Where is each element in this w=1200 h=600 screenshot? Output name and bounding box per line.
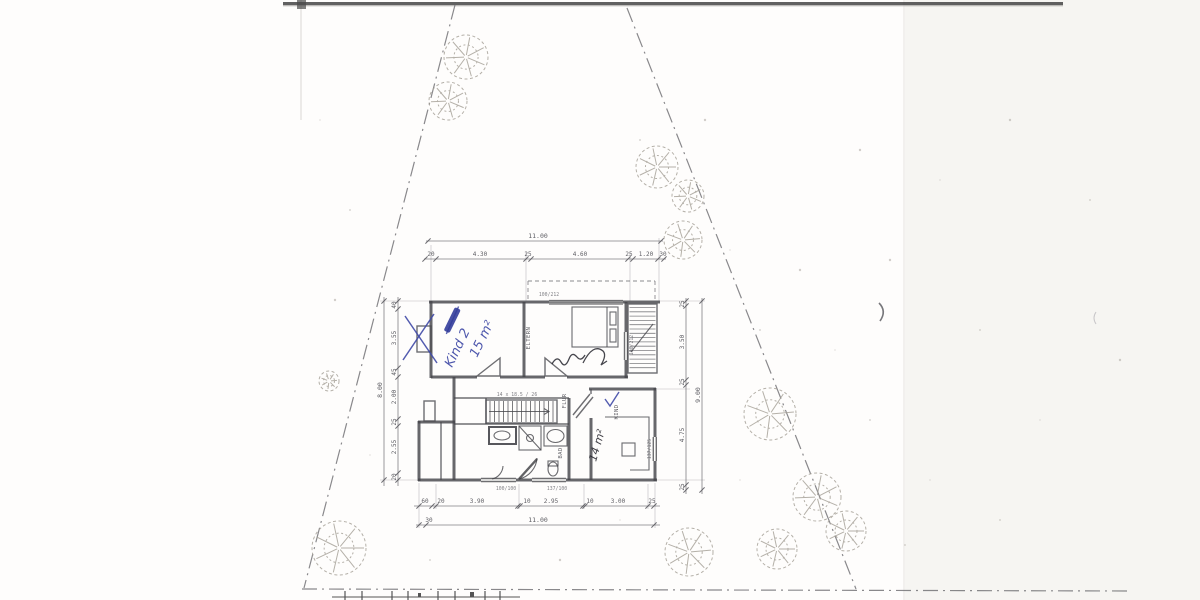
dim-top-4: 25 (625, 251, 633, 258)
dim-bot-4: 2.95 (544, 498, 559, 505)
dim-top-1: 4.30 (473, 251, 488, 258)
dim-bot-offset: 30 (425, 517, 433, 524)
window-label-top: 100/212 (539, 292, 559, 298)
scanned-site-plan-page: { "drawing": { "dimensions_top": { "tota… (0, 0, 1200, 600)
dim-top-3: 4.60 (573, 251, 588, 258)
speckle (929, 479, 930, 480)
dim-top-total: 11.00 (528, 232, 548, 240)
room-label-eltern: ELTERN (526, 327, 532, 350)
window-label-right: 137/125 (647, 439, 653, 459)
dim-right-4: 25 (679, 483, 686, 491)
speckle (1009, 119, 1011, 121)
dim-bottom-total: 11.00 (528, 516, 548, 524)
speckle (639, 139, 641, 141)
speckle (429, 559, 431, 561)
speckle (904, 544, 906, 546)
speckle (729, 249, 730, 250)
speckle (739, 479, 740, 480)
speckle (1089, 199, 1091, 201)
dim-left-1: 3.55 (391, 330, 398, 345)
dim-bot-5: 10 (586, 498, 594, 505)
speckle (1039, 419, 1040, 420)
speckle (834, 349, 835, 350)
speckle (619, 519, 620, 520)
speckle (334, 299, 336, 301)
dim-left-5: 2.55 (391, 439, 398, 454)
speckle (939, 179, 940, 180)
speckle (799, 269, 801, 271)
dim-left-total: 8.00 (376, 382, 384, 398)
dim-top-5: 1.20 (639, 251, 654, 258)
speckle (999, 519, 1001, 521)
dim-right-2: 25 (679, 378, 686, 386)
room-label-flur: FLUR (562, 393, 568, 408)
window-label-balcony: 100/212 (629, 335, 635, 355)
speckle (859, 149, 861, 151)
dim-right-1: 3.50 (679, 334, 686, 349)
dim-top-2: 25 (524, 251, 532, 258)
dim-top-0: 20 (427, 251, 435, 258)
speckle (319, 119, 320, 120)
dim-bot-6: 3.00 (611, 498, 626, 505)
dim-bot-3: 10 (523, 498, 531, 505)
scanner-corner-artifact (297, 0, 306, 9)
scanner-edge-shadow (283, 5, 1063, 6)
dim-right-total: 9.00 (694, 387, 702, 403)
speckle (869, 419, 871, 421)
dim-bot-1: 20 (437, 498, 445, 505)
speckle (349, 209, 351, 211)
speckle (704, 119, 706, 121)
speckle (559, 559, 561, 561)
speckle (889, 259, 891, 261)
dim-left-3: 2.00 (391, 389, 398, 404)
stair-note: 14 x 18.5 / 26 (497, 392, 538, 398)
dim-right-3: 4.75 (679, 427, 686, 442)
speckle (759, 329, 761, 331)
dim-left-4: 25 (391, 418, 398, 426)
site-plan-svg: 11.00 20 4.30 25 4.60 25 1.20 30 60 20 3… (0, 0, 1200, 600)
dim-left-6: 20 (391, 473, 398, 481)
dim-bot-0: 60 (421, 498, 429, 505)
speckle (979, 329, 981, 331)
scan-right-margin (905, 0, 1200, 600)
dim-left-0: 40 (391, 301, 398, 309)
speckle (1119, 359, 1121, 361)
window-label-bottom-right: 137/100 (547, 486, 567, 492)
speckle (369, 454, 370, 455)
scanner-edge-artifact (283, 2, 1063, 5)
window-label-bottom-left: 100/100 (496, 486, 516, 492)
dim-bot-2: 3.90 (470, 498, 485, 505)
room-label-kind: KIND (614, 404, 620, 419)
dim-left-2: 45 (391, 368, 398, 376)
dim-bot-7: 25 (648, 498, 656, 505)
room-label-bad: BAD (558, 447, 564, 459)
dim-top-6: 30 (659, 251, 667, 258)
dim-right-0: 25 (679, 300, 686, 308)
